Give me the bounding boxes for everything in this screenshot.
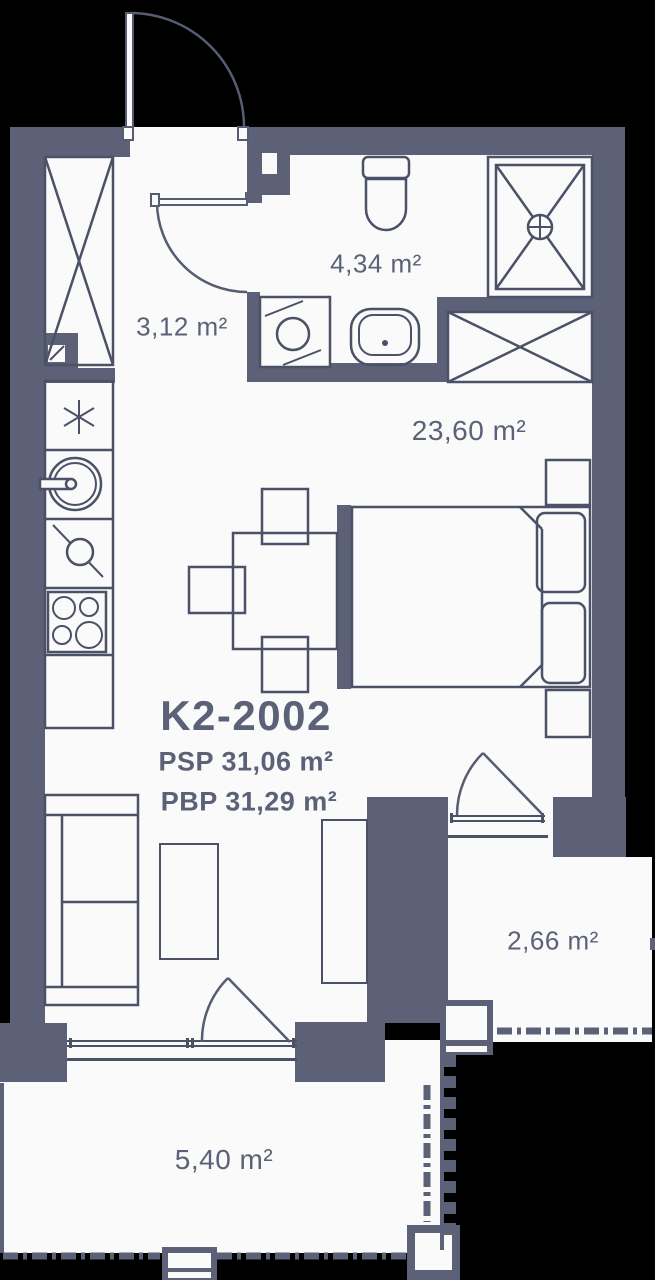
wall-shaft-notch — [262, 153, 277, 174]
entrance-door-leaf — [126, 13, 133, 127]
shower-drain-icon — [528, 215, 552, 239]
window-sill — [448, 835, 548, 838]
washing-machine-icon — [260, 297, 330, 367]
balcony-left-edge — [0, 1083, 4, 1253]
entrance-door-swing — [130, 13, 244, 127]
pillar-bottom-balcony — [162, 1247, 217, 1280]
entrance-door — [123, 13, 248, 140]
bathroom-door-leaf — [157, 199, 247, 205]
sawtooth-edge — [440, 1047, 456, 1250]
unit-pbp-label: PBP 31,29 m² — [161, 787, 338, 818]
pillar-side-balcony — [440, 1000, 493, 1055]
door-jamb-right — [238, 127, 248, 140]
bed-bench — [337, 505, 351, 689]
edge-tick — [650, 938, 655, 950]
floor-plan: 3,12 m² 4,34 m² 23,60 m² 2,66 m² 5,40 m²… — [0, 0, 655, 1280]
window-sill — [67, 1058, 297, 1061]
living-room-area-label: 23,60 m² — [412, 415, 527, 447]
unit-psp-label: PSP 31,06 m² — [158, 747, 333, 778]
door-jamb-left — [123, 127, 133, 140]
bathroom-door-jamb — [151, 194, 159, 206]
floor-plan-drawing — [0, 0, 655, 1280]
balcony-bottom-area-label: 5,40 m² — [175, 1144, 273, 1176]
bathroom-area-label: 4,34 m² — [330, 249, 422, 280]
unit-id-label: K2-2002 — [160, 692, 332, 740]
hallway-area-label: 3,12 m² — [136, 312, 228, 343]
balcony-side-area-label: 2,66 m² — [507, 926, 599, 957]
toilet-icon — [363, 157, 409, 230]
